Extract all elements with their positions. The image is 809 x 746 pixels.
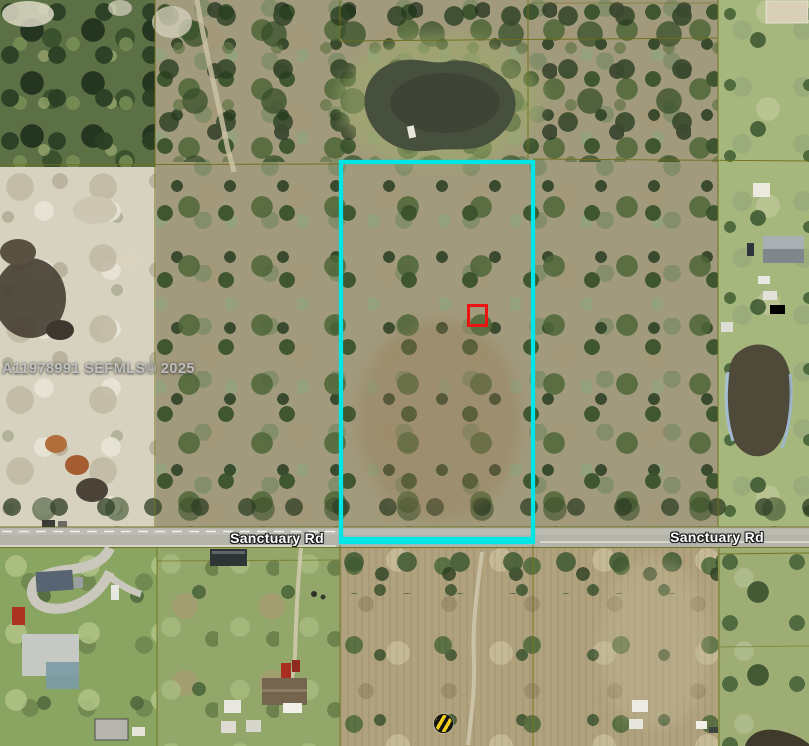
dirt-trail: [468, 552, 482, 745]
property-boundary-outline: [339, 160, 535, 544]
vehicle-on-road: [58, 521, 67, 527]
sand-mound: [73, 196, 117, 224]
pool-enclosure: [46, 662, 79, 689]
vehicle-dark: [709, 727, 718, 733]
shed: [632, 700, 648, 712]
debris-pile-dark: [0, 239, 36, 265]
shed: [721, 322, 733, 332]
shed: [629, 719, 643, 729]
pond-top-deep: [390, 73, 500, 133]
shed: [95, 719, 128, 740]
sand-mound: [116, 251, 144, 269]
barn-roof-light: [763, 236, 804, 249]
shed: [221, 721, 236, 733]
clearing: [152, 6, 192, 38]
shed: [132, 727, 145, 736]
livestock: [311, 591, 317, 597]
debris-pile-dark: [76, 478, 108, 502]
debris-pile-orange: [65, 455, 89, 475]
trailer: [770, 305, 785, 314]
vehicle-white: [111, 585, 119, 600]
trailer: [763, 291, 777, 300]
debris-pile-dark: [46, 320, 74, 340]
parcel-line-horizontal: [533, 159, 809, 161]
sandpit-piles: [0, 196, 144, 502]
trailer: [758, 276, 770, 284]
road-label-sanctuary-rd-west: Sanctuary Rd: [230, 530, 324, 546]
parcel-line-horizontal: [157, 560, 340, 561]
vehicle: [74, 577, 83, 588]
pond-bottomright: [745, 730, 809, 746]
trailer: [696, 721, 707, 729]
pond-right: [726, 344, 791, 456]
red-equipment: [12, 607, 25, 625]
livestock: [321, 595, 326, 600]
vehicle-on-road: [42, 520, 55, 527]
debris-pile-orange: [45, 435, 67, 453]
red-truck: [281, 663, 291, 678]
shed: [224, 700, 241, 713]
red-truck: [292, 660, 300, 672]
shed: [246, 720, 261, 732]
parcel-line-horizontal: [0, 164, 341, 165]
house-roof: [766, 1, 808, 23]
vehicle: [747, 243, 754, 256]
barn-ridge: [212, 551, 245, 554]
shed: [753, 183, 770, 197]
parcel-line-horizontal: [718, 553, 809, 554]
house-roof-dark: [35, 570, 73, 593]
trailer: [283, 703, 302, 713]
mls-watermark: A11978991 SEFMLS© 2025: [2, 361, 195, 377]
road-label-sanctuary-rd-east: Sanctuary Rd: [670, 529, 764, 545]
subject-square-marker: [467, 304, 488, 327]
aerial-parcel-map: Sanctuary Rd Sanctuary Rd A11978991 SEFM…: [0, 0, 809, 746]
parcel-line-horizontal: [340, 38, 718, 41]
forest-trail: [197, 0, 234, 172]
parcel-line-horizontal: [718, 646, 809, 647]
forest-clearings: [2, 0, 192, 38]
house-ridge: [262, 689, 307, 692]
clearing: [2, 1, 54, 27]
hazard-striped-marker: [434, 714, 453, 733]
clearing: [108, 0, 132, 16]
